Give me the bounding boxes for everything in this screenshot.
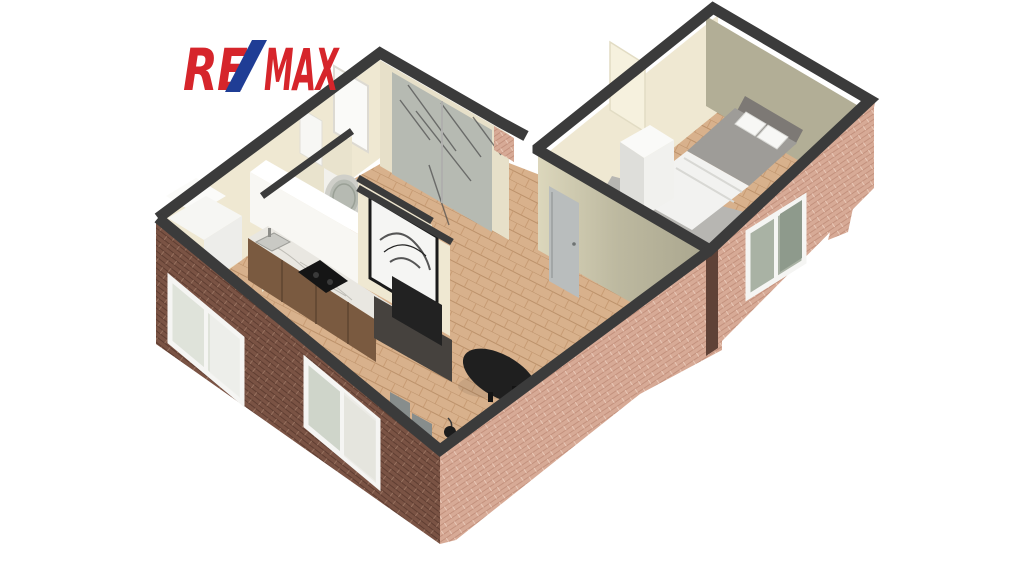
- floorplan-image: RE MAX: [0, 0, 1024, 576]
- faucet: [268, 228, 271, 237]
- floorplan-svg: RE MAX: [0, 0, 1024, 576]
- door-handle: [572, 242, 576, 246]
- remax-logo: RE MAX: [183, 36, 340, 104]
- logo-max: MAX: [264, 36, 340, 104]
- bedroom-door: [549, 186, 579, 298]
- table-leg-1: [488, 392, 493, 402]
- corner-downpipe-strip: [706, 248, 718, 356]
